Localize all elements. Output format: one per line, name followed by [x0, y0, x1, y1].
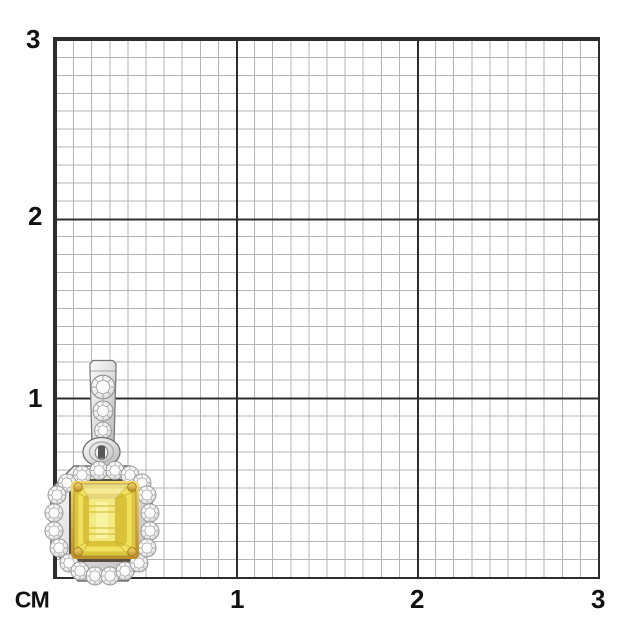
y-axis-label-1: 1 [28, 385, 42, 411]
measurement-photo: 3 2 1 СМ 1 2 3 [0, 0, 640, 640]
unit-label-cm: СМ [15, 589, 49, 612]
x-axis-label-3: 3 [591, 586, 605, 612]
x-axis-label-2: 2 [410, 586, 424, 612]
y-axis-label-2: 2 [28, 203, 42, 229]
center-stone [73, 483, 138, 558]
y-axis-label-3: 3 [26, 26, 40, 52]
pendant-image [44, 356, 160, 590]
x-axis-label-1: 1 [230, 586, 244, 612]
